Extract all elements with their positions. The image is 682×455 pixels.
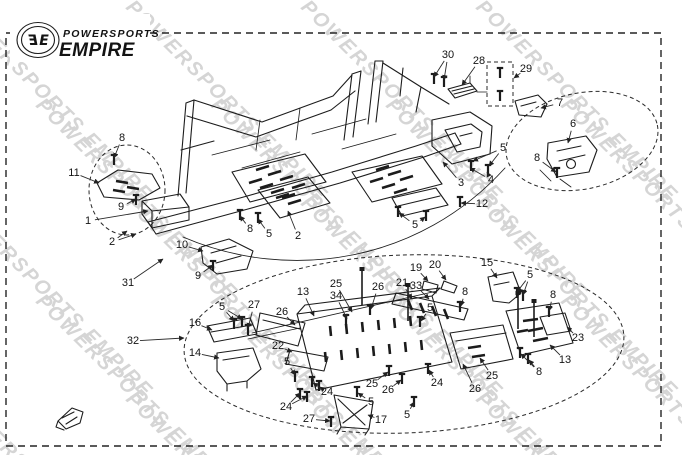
- callout-25-55: 25: [486, 370, 498, 382]
- callout-9-16: 9: [118, 201, 124, 213]
- callout-2-18: 2: [109, 236, 115, 248]
- callout-6-4: 6: [570, 118, 576, 130]
- callout-5-37: 5: [404, 409, 410, 421]
- leader-line-5: [473, 151, 497, 161]
- hardware-28-29-30: [448, 62, 513, 106]
- leader-line-5: [420, 217, 425, 221]
- callout-1-17: 1: [85, 215, 91, 227]
- callout-26-42: 26: [372, 281, 384, 293]
- callout-5-24: 5: [219, 301, 225, 313]
- leader-line-24: [429, 370, 433, 377]
- callout-27-32: 27: [303, 413, 315, 425]
- callout-21-43: 21: [396, 277, 408, 289]
- callout-31-21: 31: [122, 277, 134, 289]
- leader-line-32: [140, 338, 184, 341]
- leader-line-31: [134, 259, 163, 279]
- callout-25-41: 25: [330, 278, 342, 290]
- callout-8-49: 8: [462, 286, 468, 298]
- callout-12-9: 12: [476, 198, 488, 210]
- callout-22-28: 22: [272, 340, 284, 352]
- callout-20-46: 20: [429, 259, 441, 271]
- callout-23-52: 23: [572, 332, 584, 344]
- callout-24-30: 24: [321, 386, 333, 398]
- callout-8-54: 8: [536, 366, 542, 378]
- leader-line-5: [489, 154, 499, 166]
- callout-15-47: 15: [481, 257, 493, 269]
- callout-33-44: 33: [410, 280, 422, 292]
- callout-26-27: 26: [276, 306, 288, 318]
- leader-line-14: [202, 354, 219, 358]
- callout-17-33: 17: [375, 414, 387, 426]
- callout-5-48: 5: [527, 269, 533, 281]
- leader-line-20: [439, 271, 446, 280]
- watermark-text: POWERSPORTS EMPIRE: [0, 192, 157, 402]
- callout-25-35: 25: [366, 378, 378, 390]
- callout-8-13: 8: [247, 223, 253, 235]
- leader-line-11: [80, 176, 99, 183]
- callout-24-31: 24: [280, 401, 292, 413]
- leader-line-30: [434, 61, 444, 77]
- parts-diagram-page: POWERSPORTS EMPIREPOWERSPORTS EMPIREPOWE…: [0, 0, 682, 455]
- callout-7-3: 7: [557, 97, 563, 109]
- callout-32-22: 32: [127, 335, 139, 347]
- callout-5-29: 5: [284, 356, 290, 368]
- leader-line-13: [306, 298, 314, 316]
- callout-8-5: 8: [534, 152, 540, 164]
- callout-27-25: 27: [248, 299, 260, 311]
- callout-5-51: 5: [427, 302, 433, 314]
- callout-30-0: 30: [442, 49, 454, 61]
- leader-line-5: [258, 219, 265, 228]
- callout-3-8: 3: [458, 177, 464, 189]
- callout-2-11: 2: [295, 230, 301, 242]
- callout-10-19: 10: [176, 239, 188, 251]
- callout-28-1: 28: [473, 55, 485, 67]
- callout-14-26: 14: [189, 347, 201, 359]
- leader-line-28: [462, 67, 475, 85]
- callout-26-56: 26: [469, 383, 481, 395]
- callout-13-53: 13: [559, 354, 571, 366]
- callout-11-15: 11: [68, 167, 79, 179]
- loose-bracket-sketch: [56, 408, 83, 430]
- leader-line-5: [358, 393, 365, 398]
- leader-line-12: [461, 203, 475, 204]
- emblem-letter: E: [39, 33, 49, 49]
- parts-diagram: POWERSPORTS EMPIREPOWERSPORTS EMPIREPOWE…: [0, 0, 682, 455]
- callout-13-39: 13: [297, 286, 309, 298]
- callout-24-38: 24: [431, 377, 443, 389]
- callout-5-10: 5: [412, 219, 418, 231]
- callout-5-6: 5: [500, 142, 506, 154]
- callout-4-7: 4: [488, 174, 494, 186]
- callout-5-34: 5: [368, 396, 374, 408]
- leader-line-7: [541, 105, 553, 108]
- callout-9-20: 9: [195, 270, 201, 282]
- leader-line-26: [394, 380, 401, 386]
- brand-name-powersports: POWERSPORTS: [63, 28, 160, 40]
- emblem-letter-mirrored: E: [28, 33, 38, 49]
- callout-8-14: 8: [119, 132, 125, 144]
- leader-line-6: [568, 131, 571, 143]
- callout-29-2: 29: [520, 63, 532, 75]
- callout-8-50: 8: [550, 289, 556, 301]
- callout-26-36: 26: [382, 384, 394, 396]
- callout-5-12: 5: [266, 228, 272, 240]
- leader-line-34: [339, 302, 347, 319]
- brand-name-empire: EMPIRE: [59, 40, 136, 61]
- callout-16-23: 16: [189, 317, 201, 329]
- callout-19-45: 19: [410, 262, 422, 274]
- watermark-layer: POWERSPORTS EMPIREPOWERSPORTS EMPIREPOWE…: [0, 0, 682, 455]
